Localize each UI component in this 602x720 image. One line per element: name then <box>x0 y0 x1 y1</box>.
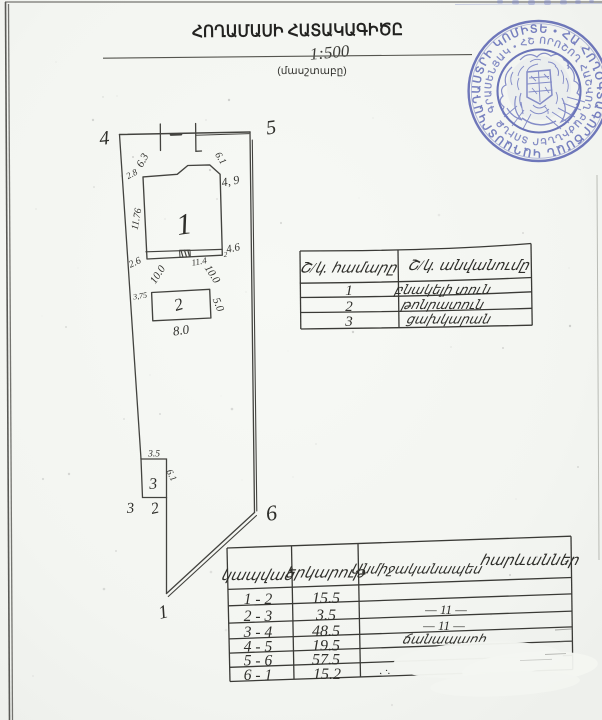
svg-text:Շ/կ. համարը: Շ/կ. համարը <box>298 261 399 277</box>
svg-text:(մասշտաբը): (մասշտաբը) <box>277 65 347 77</box>
svg-text:1 - 2: 1 - 2 <box>244 591 273 608</box>
svg-text:Անմիջականապես: Անմիջականապես <box>349 562 484 577</box>
svg-text:ցախկարան: ցախկարան <box>404 312 492 327</box>
svg-text:3: 3 <box>148 475 158 493</box>
svg-text:. ·.: . ·. <box>380 665 391 677</box>
svg-text:6 - 1: 6 - 1 <box>244 667 272 684</box>
svg-text:15.5: 15.5 <box>312 590 340 607</box>
svg-text:3.5: 3.5 <box>315 607 336 624</box>
svg-text:2: 2 <box>224 251 228 259</box>
svg-text:-: - <box>565 555 569 567</box>
svg-text:3.5: 3.5 <box>147 450 160 460</box>
svg-text:— 11 —: — 11 — <box>422 618 465 633</box>
svg-text:2 - 3: 2 - 3 <box>244 608 273 625</box>
svg-text:15.2: 15.2 <box>313 666 341 683</box>
svg-text:Շ/կ. անվանումը: Շ/կ. անվանումը <box>405 258 531 274</box>
svg-text:բնակելի տուն: բնակելի տուն <box>392 282 492 297</box>
svg-text:— 11 —: — 11 — <box>424 602 467 617</box>
svg-text:8.0: 8.0 <box>172 321 191 338</box>
svg-text:3: 3 <box>344 314 353 330</box>
svg-text:2: 2 <box>345 299 353 315</box>
svg-text:թոնրատուն: թոնրատուն <box>399 297 485 312</box>
svg-text:1: 1 <box>345 283 353 299</box>
svg-text:3: 3 <box>125 501 135 518</box>
svg-text:1:500: 1:500 <box>309 41 351 63</box>
svg-text:ՀՈՂԱՄԱՍԻ ՀԱՏԱԿԱԳԻԾԸ: ՀՈՂԱՄԱՍԻ ՀԱՏԱԿԱԳԻԾԸ <box>192 21 403 41</box>
